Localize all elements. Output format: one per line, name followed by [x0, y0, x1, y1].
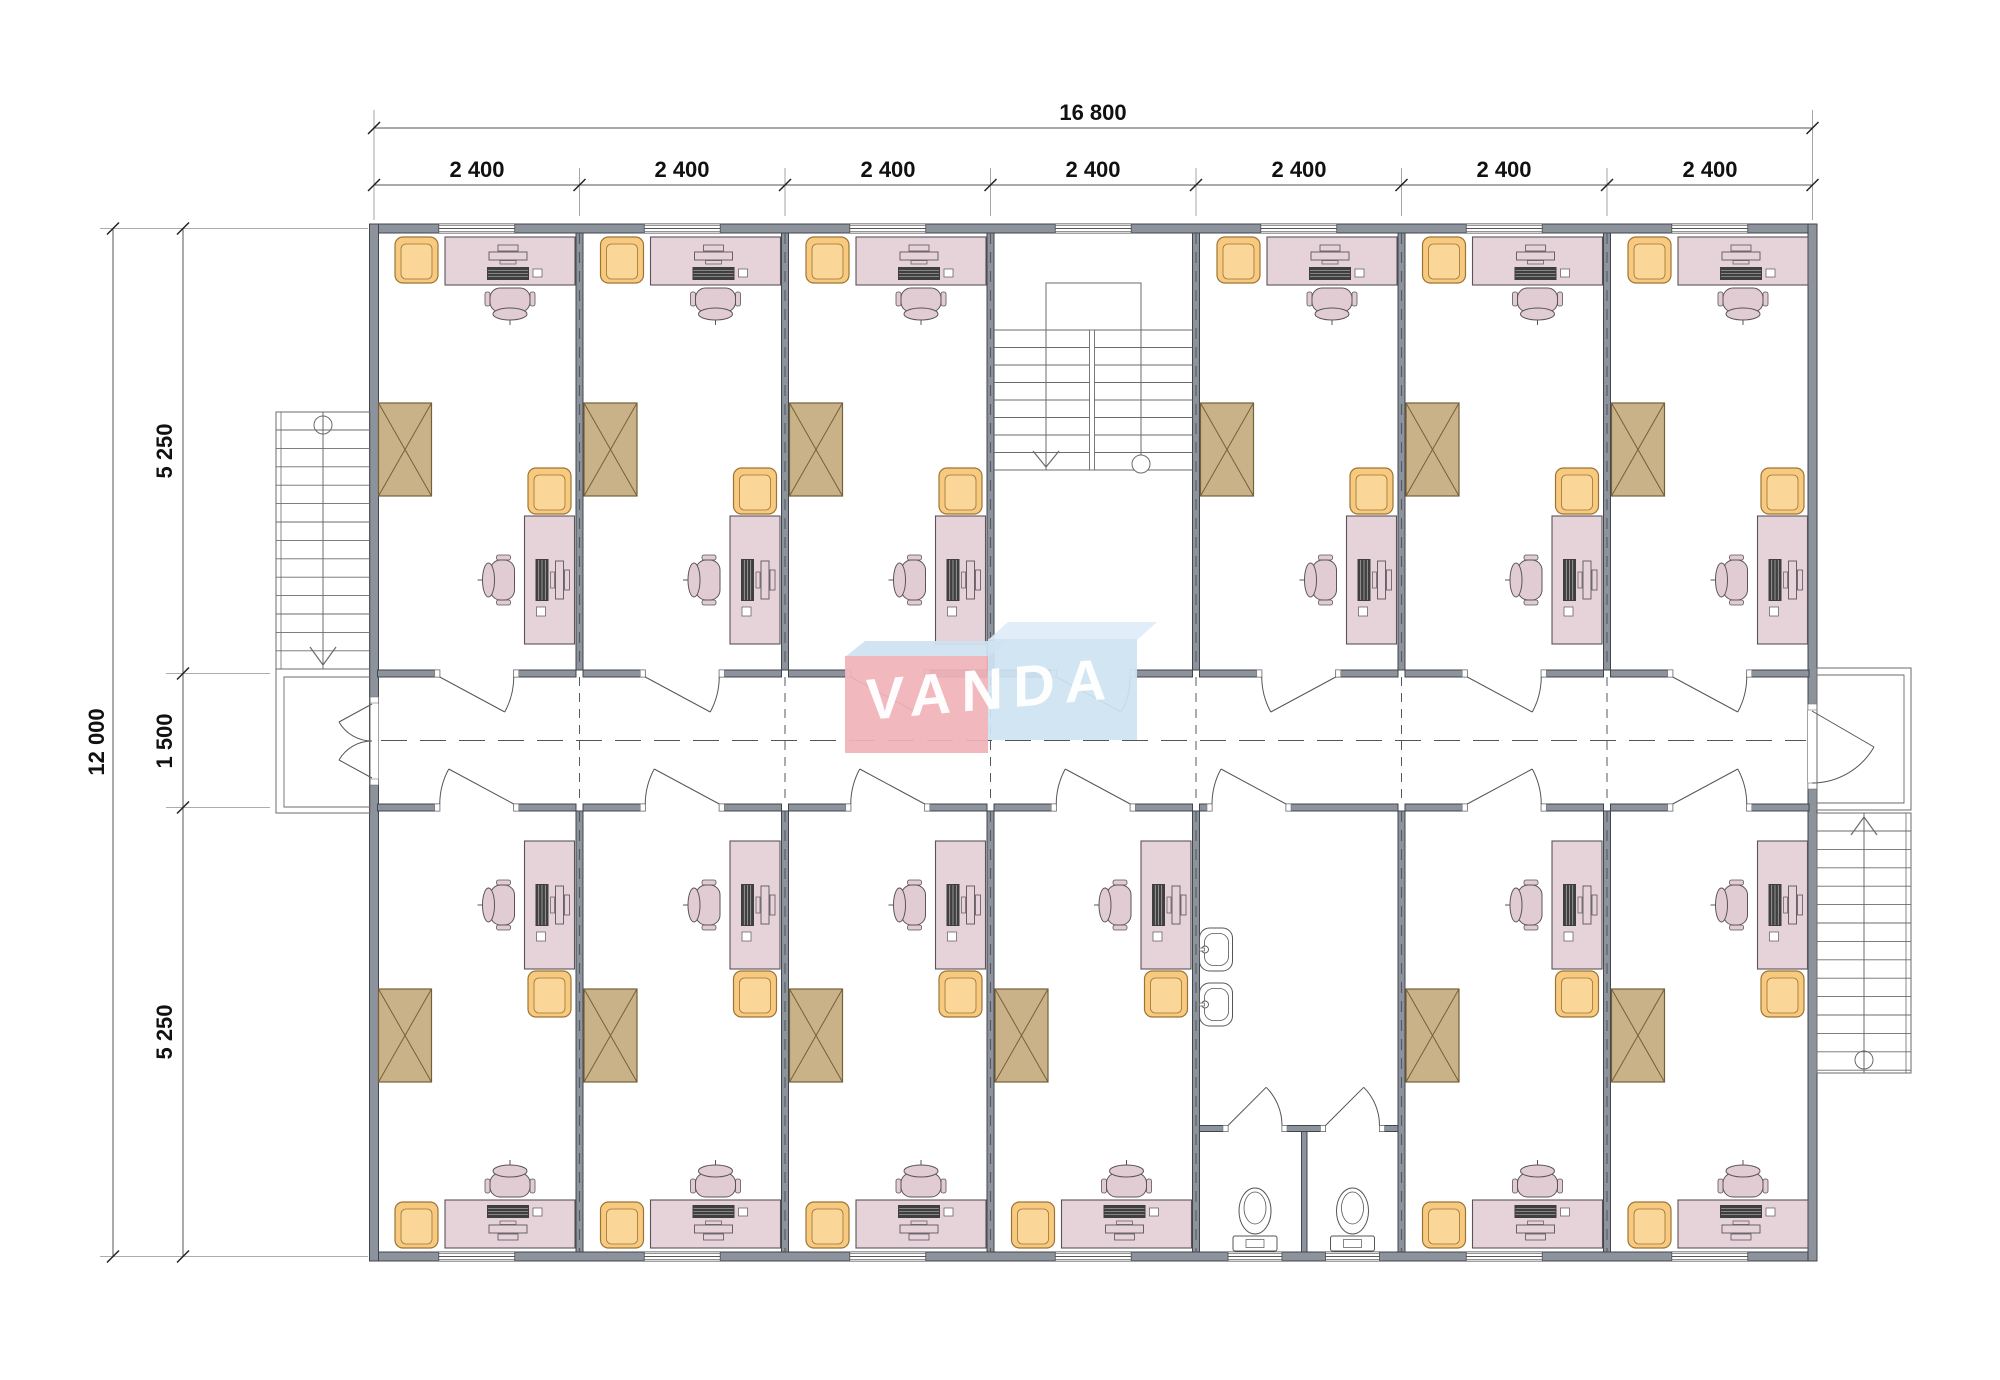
- mouse: [1770, 607, 1779, 616]
- monitor: [1172, 886, 1180, 924]
- dim-total-height: 12 000: [84, 708, 109, 775]
- door-jamb: [514, 670, 519, 677]
- wall-corridor-top: [378, 670, 440, 677]
- mouse: [1564, 607, 1573, 616]
- door-leaf: [449, 769, 514, 804]
- door-jamb: [1051, 670, 1056, 677]
- wall-corridor-bottom: [1541, 804, 1603, 811]
- office-top-2: [584, 237, 781, 644]
- monitor-top: [704, 1234, 724, 1240]
- armchair-seat: [945, 978, 976, 1013]
- task-chair: [683, 555, 720, 605]
- chair-base: [688, 563, 700, 597]
- chair-armrest: [691, 292, 696, 306]
- mouse: [948, 932, 957, 941]
- chair-base: [904, 1165, 938, 1177]
- armchair-seat: [1429, 244, 1460, 279]
- door-leaf: [1056, 677, 1121, 712]
- door-jamb: [1541, 804, 1546, 811]
- task-chair: [478, 555, 515, 605]
- chair-base: [1716, 563, 1728, 597]
- mouse: [739, 1208, 748, 1216]
- door-swing: [1812, 747, 1874, 783]
- monitor-stand: [500, 1221, 516, 1225]
- dim-row-corridor: 1 500: [152, 713, 177, 768]
- wall-corridor-bottom: [789, 804, 851, 811]
- monitor-stand: [1784, 572, 1788, 588]
- wall-corridor-bottom: [378, 804, 440, 811]
- monitor-stand: [1117, 1221, 1133, 1225]
- wall-corridor-top: [1130, 670, 1192, 677]
- door-swing: [710, 677, 719, 712]
- door-jamb: [640, 804, 645, 811]
- door-swing: [339, 722, 372, 741]
- task-chair: [1718, 1160, 1768, 1197]
- door-jamb: [1668, 804, 1673, 811]
- wall-corridor-bottom: [1611, 804, 1673, 811]
- sink: [1200, 983, 1233, 1026]
- monitor-stand: [1578, 572, 1582, 588]
- dim-row-bottom: 5 250: [152, 1004, 177, 1059]
- mouse: [537, 932, 546, 941]
- wall-stall-divider: [1302, 1132, 1308, 1253]
- monitor-top: [1592, 570, 1597, 590]
- monitor: [695, 252, 733, 260]
- door-jamb: [1286, 804, 1291, 811]
- monitor-top: [1526, 1234, 1546, 1240]
- dim-module-7: 2 400: [1682, 157, 1737, 182]
- floor-plan-canvas: 16 800 2 400 2 400 2 400 2 400 2 400 2 4…: [0, 0, 2000, 1380]
- wall-corridor-top: [1611, 670, 1673, 677]
- office-top-5: [1201, 237, 1398, 644]
- office-bottom-3: [790, 841, 987, 1248]
- stair-arrow: [1851, 817, 1864, 835]
- chair-armrest: [1513, 1179, 1518, 1193]
- armchair-seat: [812, 244, 843, 279]
- armchair-seat: [1018, 1209, 1049, 1244]
- office-bottom-4: [995, 841, 1192, 1248]
- armchair-seat: [740, 475, 771, 510]
- door-swing: [851, 769, 860, 804]
- stair-exterior-left: [276, 412, 370, 669]
- chair-base: [493, 308, 527, 320]
- door-leaf: [1673, 769, 1738, 804]
- monitor-top: [770, 895, 775, 915]
- chair-armrest: [530, 1179, 535, 1193]
- door-leaf: [1467, 677, 1532, 712]
- chair-armrest: [702, 925, 716, 930]
- sink-tap-stem: [1200, 1003, 1205, 1006]
- task-chair: [1307, 288, 1357, 325]
- wall-corridor-top: [994, 670, 1056, 677]
- mouse: [944, 1208, 953, 1216]
- door-jamb: [1223, 1126, 1228, 1132]
- task-chair: [485, 288, 535, 325]
- chair-armrest: [1558, 292, 1563, 306]
- door-leaf: [1326, 1087, 1364, 1125]
- armchair-seat: [740, 978, 771, 1013]
- chair-armrest: [485, 292, 490, 306]
- monitor-stand: [1528, 1221, 1544, 1225]
- drawing-layer: [100, 110, 1911, 1263]
- door-leaf: [440, 677, 505, 712]
- monitor-stand: [962, 897, 966, 913]
- chair-base: [894, 563, 906, 597]
- mouse: [533, 269, 542, 277]
- stair-arrow: [323, 647, 336, 665]
- wall-corridor-top: [514, 670, 576, 677]
- door-jamb: [1462, 804, 1467, 811]
- dim-row-top: 5 250: [152, 423, 177, 478]
- chair-armrest: [1730, 880, 1744, 885]
- monitor-stand: [756, 572, 760, 588]
- monitor-top: [565, 895, 570, 915]
- monitor-top: [704, 245, 724, 251]
- dim-module-4: 2 400: [1065, 157, 1120, 182]
- monitor-stand: [1784, 897, 1788, 913]
- wall-corridor-top: [1405, 670, 1467, 677]
- office-top-7: [1612, 237, 1809, 644]
- armchair-seat: [1634, 1209, 1665, 1244]
- mouse: [742, 932, 751, 941]
- chair-armrest: [1730, 600, 1744, 605]
- wall-corridor-top: [1747, 670, 1809, 677]
- monitor-top: [1592, 895, 1597, 915]
- chair-armrest: [908, 555, 922, 560]
- monitor: [1722, 1225, 1760, 1233]
- door-jamb: [1336, 670, 1341, 677]
- chair-base: [1716, 888, 1728, 922]
- floor-plan-drawing: 16 800 2 400 2 400 2 400 2 400 2 400 2 4…: [0, 0, 2000, 1380]
- door-jamb: [925, 804, 930, 811]
- monitor-stand: [962, 572, 966, 588]
- door-leaf: [339, 704, 372, 722]
- monitor: [1789, 886, 1797, 924]
- chair-armrest: [1513, 292, 1518, 306]
- mouse: [537, 607, 546, 616]
- task-chair: [889, 880, 926, 930]
- chair-base: [483, 888, 495, 922]
- toilet-tank: [1233, 1236, 1277, 1251]
- washroom: [1200, 928, 1375, 1251]
- door-swing: [440, 769, 449, 804]
- door-leaf: [339, 760, 372, 778]
- mouse: [1359, 607, 1368, 616]
- chair-armrest: [1524, 600, 1538, 605]
- monitor-top: [909, 245, 929, 251]
- armchair-seat: [1562, 475, 1593, 510]
- chair-armrest: [702, 600, 716, 605]
- armchair-seat: [1767, 475, 1798, 510]
- monitor-stand: [500, 261, 516, 265]
- chair-base: [699, 308, 733, 320]
- chair-armrest: [497, 555, 511, 560]
- monitor-stand: [706, 261, 722, 265]
- window-top: [850, 224, 926, 233]
- chair-armrest: [908, 925, 922, 930]
- armchair-seat: [1429, 1209, 1460, 1244]
- monitor-top: [498, 245, 518, 251]
- window-top: [1055, 224, 1131, 233]
- chair-armrest: [1730, 555, 1744, 560]
- door-leaf: [851, 677, 916, 712]
- task-chair: [1094, 880, 1131, 930]
- chair-armrest: [1718, 1179, 1723, 1193]
- window-top: [1261, 224, 1337, 233]
- door-jamb: [719, 670, 724, 677]
- chair-armrest: [702, 555, 716, 560]
- monitor-stand: [1733, 1221, 1749, 1225]
- window-bottom: [1672, 1252, 1748, 1261]
- porch-left-inner: [284, 677, 370, 807]
- exterior-stairs: [276, 283, 1911, 1073]
- monitor-top: [976, 895, 981, 915]
- task-chair: [485, 1160, 535, 1197]
- monitor-top: [565, 570, 570, 590]
- armchair-seat: [607, 244, 638, 279]
- chair-base: [483, 563, 495, 597]
- door-swing: [1212, 769, 1221, 804]
- armchair-seat: [1767, 978, 1798, 1013]
- door-jamb: [925, 670, 930, 677]
- mouse: [739, 269, 748, 277]
- mouse: [948, 607, 957, 616]
- mouse: [1561, 1208, 1570, 1216]
- door-jamb: [514, 804, 519, 811]
- monitor-stand: [911, 261, 927, 265]
- monitor: [1583, 561, 1591, 599]
- chair-armrest: [530, 292, 535, 306]
- stair-arrow: [310, 647, 323, 665]
- chair-base: [493, 1165, 527, 1177]
- chair-base: [1521, 308, 1555, 320]
- porch-left: [276, 669, 370, 813]
- chair-armrest: [1319, 600, 1333, 605]
- door-jamb: [1321, 1126, 1326, 1132]
- dim-module-1: 2 400: [449, 157, 504, 182]
- stair-divider: [1090, 330, 1095, 470]
- chair-base: [1510, 888, 1522, 922]
- dim-total-width: 16 800: [1059, 100, 1126, 125]
- monitor: [1378, 561, 1386, 599]
- mouse: [1766, 269, 1775, 277]
- chair-base: [1510, 563, 1522, 597]
- chair-armrest: [1763, 1179, 1768, 1193]
- sink-tap-stem: [1200, 948, 1205, 951]
- monitor-top: [1731, 245, 1751, 251]
- wall-corridor-bottom: [925, 804, 987, 811]
- armchair-seat: [401, 244, 432, 279]
- monitor-stand: [706, 1221, 722, 1225]
- chair-armrest: [1524, 555, 1538, 560]
- stair-arrow: [1046, 451, 1059, 467]
- door-leaf: [654, 769, 719, 804]
- task-chair: [478, 880, 515, 930]
- mouse: [1561, 269, 1570, 277]
- monitor-top: [1731, 1234, 1751, 1240]
- chair-armrest: [702, 880, 716, 885]
- stairwell-central: [994, 283, 1193, 473]
- door-jamb: [435, 804, 440, 811]
- dim-module-2: 2 400: [654, 157, 709, 182]
- task-chair: [683, 880, 720, 930]
- wall-corridor-top: [789, 670, 851, 677]
- monitor: [1722, 252, 1760, 260]
- monitor-stand: [1733, 261, 1749, 265]
- chair-base: [688, 888, 700, 922]
- monitor-stand: [1373, 572, 1377, 588]
- door-swing: [339, 741, 372, 760]
- monitor: [489, 1225, 527, 1233]
- porch-right: [1817, 668, 1911, 810]
- chair-armrest: [485, 1179, 490, 1193]
- door-leaf: [1467, 769, 1532, 804]
- armchair-seat: [1356, 475, 1387, 510]
- chair-armrest: [1102, 1179, 1107, 1193]
- task-chair: [1300, 555, 1337, 605]
- door-leaf: [1221, 769, 1286, 804]
- monitor: [1311, 252, 1349, 260]
- chair-armrest: [1524, 925, 1538, 930]
- office-bottom-7: [1612, 841, 1809, 1248]
- monitor: [900, 1225, 938, 1233]
- monitor-top: [976, 570, 981, 590]
- dim-module-5: 2 400: [1271, 157, 1326, 182]
- task-chair: [889, 555, 926, 605]
- task-chair: [1711, 555, 1748, 605]
- wall-corridor-bottom: [1747, 804, 1809, 811]
- door-swing: [1532, 677, 1541, 712]
- monitor-top: [1320, 245, 1340, 251]
- chair-armrest: [896, 292, 901, 306]
- office-top-6: [1406, 237, 1603, 644]
- door-swing: [1364, 1087, 1380, 1125]
- door-leaf: [1228, 1087, 1266, 1125]
- stair-start-circle: [1132, 455, 1150, 473]
- chair-armrest: [736, 292, 741, 306]
- mouse: [533, 1208, 542, 1216]
- door-jamb: [1207, 804, 1212, 811]
- door-swing: [1266, 1087, 1282, 1125]
- chair-armrest: [1319, 555, 1333, 560]
- window-top: [1672, 224, 1748, 233]
- armchair-seat: [812, 1209, 843, 1244]
- door-swing: [1262, 677, 1271, 712]
- wall-corridor-bottom: [719, 804, 781, 811]
- mouse: [1153, 932, 1162, 941]
- door-jamb: [1051, 804, 1056, 811]
- chair-armrest: [1718, 292, 1723, 306]
- chair-armrest: [908, 600, 922, 605]
- chair-base: [1726, 308, 1760, 320]
- chair-base: [1305, 563, 1317, 597]
- chair-armrest: [497, 600, 511, 605]
- window-bottom: [1055, 1252, 1131, 1261]
- monitor-stand: [756, 897, 760, 913]
- chair-armrest: [497, 880, 511, 885]
- monitor-top: [909, 1234, 929, 1240]
- door-leaf: [1673, 677, 1738, 712]
- toilet-tank: [1331, 1236, 1375, 1251]
- window-top: [1466, 224, 1542, 233]
- monitor: [967, 886, 975, 924]
- door-leaf: [645, 677, 710, 712]
- monitor-top: [1115, 1234, 1135, 1240]
- chair-base: [699, 1165, 733, 1177]
- door-jamb: [1541, 670, 1546, 677]
- chair-armrest: [1558, 1179, 1563, 1193]
- stair-arrow: [1864, 817, 1877, 835]
- sink: [1200, 928, 1233, 971]
- chair-base: [1099, 888, 1111, 922]
- monitor: [1789, 561, 1797, 599]
- chair-armrest: [1307, 292, 1312, 306]
- chair-armrest: [497, 925, 511, 930]
- armchair-seat: [945, 475, 976, 510]
- chair-armrest: [1113, 925, 1127, 930]
- wall-corridor-top: [583, 670, 645, 677]
- office-bottom-1: [379, 841, 576, 1248]
- monitor: [1517, 1225, 1555, 1233]
- chair-base: [1110, 1165, 1144, 1177]
- monitor: [556, 561, 564, 599]
- door-jamb: [1808, 783, 1817, 789]
- task-chair: [1505, 880, 1542, 930]
- monitor: [761, 561, 769, 599]
- mouse: [1150, 1208, 1159, 1216]
- door-jamb: [846, 804, 851, 811]
- chair-base: [1521, 1165, 1555, 1177]
- task-chair: [1505, 555, 1542, 605]
- door-jamb: [719, 804, 724, 811]
- chair-armrest: [691, 1179, 696, 1193]
- mouse: [944, 269, 953, 277]
- monitor-stand: [551, 572, 555, 588]
- door-leaf: [1271, 677, 1336, 712]
- door-jamb: [1808, 704, 1817, 710]
- monitor: [1583, 886, 1591, 924]
- wall-corridor-top: [1541, 670, 1603, 677]
- door-swing: [505, 677, 514, 712]
- door-swing: [916, 677, 925, 712]
- monitor-stand: [1528, 261, 1544, 265]
- armchair-seat: [534, 978, 565, 1013]
- chair-armrest: [1147, 1179, 1152, 1193]
- task-chair: [896, 1160, 946, 1197]
- task-chair: [691, 1160, 741, 1197]
- chair-armrest: [1730, 925, 1744, 930]
- window-bottom: [850, 1252, 926, 1261]
- door-jamb: [1380, 1126, 1385, 1132]
- wall-corridor-top: [1200, 670, 1262, 677]
- monitor-top: [1798, 895, 1803, 915]
- office-top-1: [379, 237, 576, 644]
- task-chair: [1513, 1160, 1563, 1197]
- door-swing: [645, 769, 654, 804]
- monitor: [695, 1225, 733, 1233]
- stair-exterior-right: [1817, 813, 1911, 1073]
- window-bottom: [439, 1252, 515, 1261]
- mouse: [1766, 1208, 1775, 1216]
- dim-module-6: 2 400: [1476, 157, 1531, 182]
- door-jamb: [640, 670, 645, 677]
- mouse: [742, 607, 751, 616]
- chair-armrest: [908, 880, 922, 885]
- door-jamb: [1668, 670, 1673, 677]
- door-jamb: [370, 697, 379, 703]
- window-top: [439, 224, 515, 233]
- task-chair: [896, 288, 946, 325]
